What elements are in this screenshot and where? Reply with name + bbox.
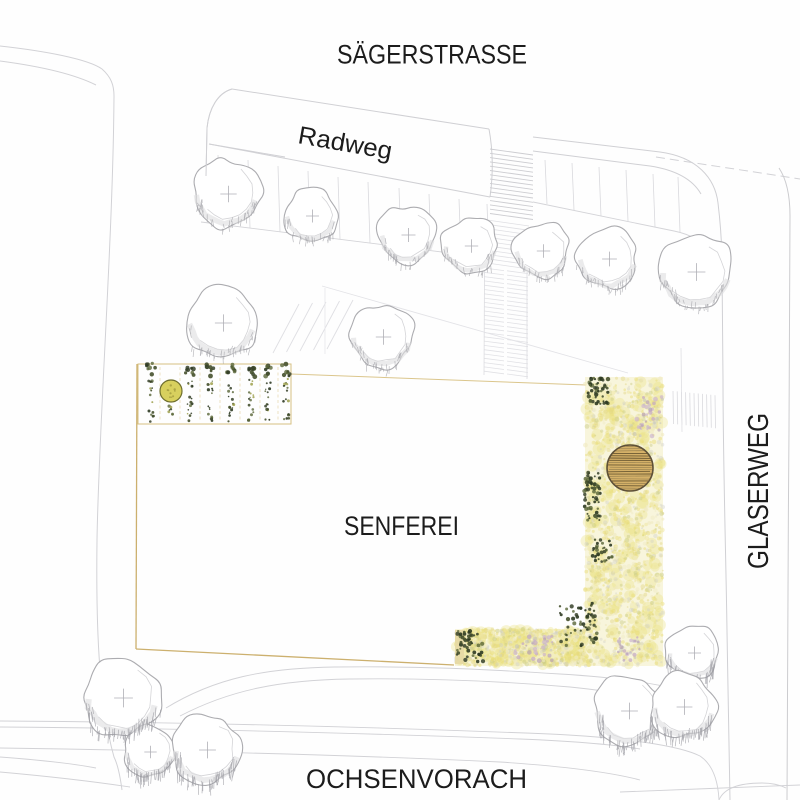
svg-text:GLASERWEG: GLASERWEG <box>743 413 775 569</box>
svg-text:SENFEREI: SENFEREI <box>344 511 459 541</box>
svg-text:SÄGERSTRASSE: SÄGERSTRASSE <box>337 40 527 70</box>
svg-text:OCHSENVORACH: OCHSENVORACH <box>306 764 527 794</box>
